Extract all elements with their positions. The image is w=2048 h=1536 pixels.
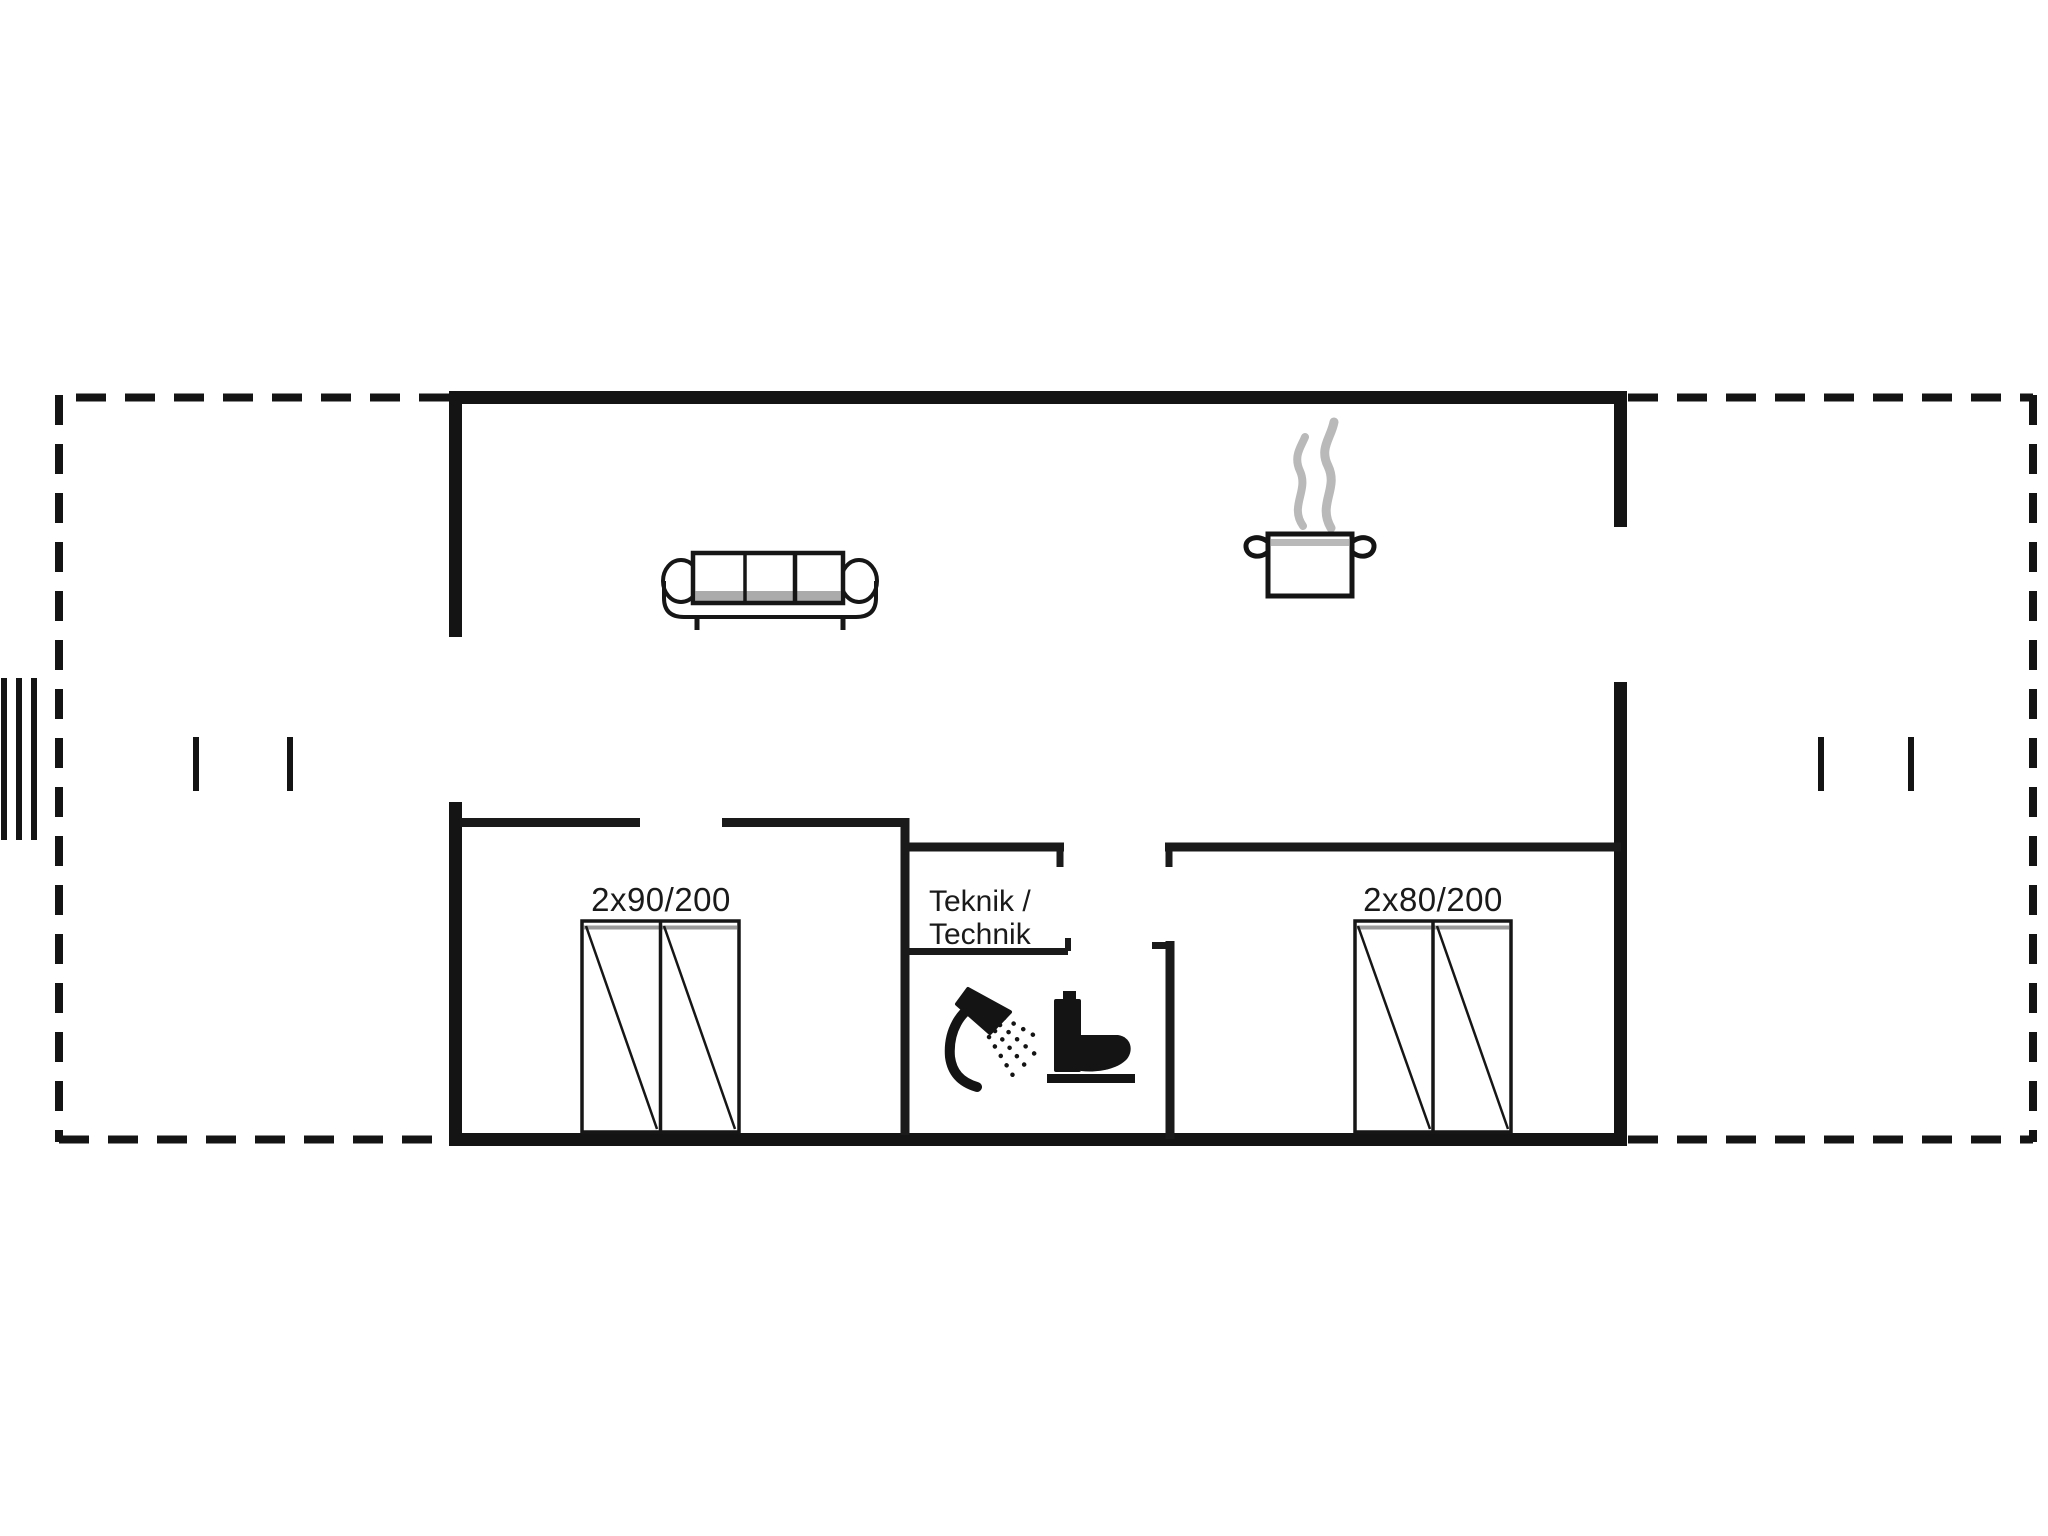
cooking-pot-icon [1246, 534, 1374, 596]
toilet-icon [1047, 991, 1135, 1083]
floor-plan: 2x90/200 2x80/200 Teknik / Technik [0, 0, 2048, 1536]
floor-plan-svg: 2x90/200 2x80/200 Teknik / Technik [0, 0, 2048, 1536]
utility-room-label-line2: Technik [929, 918, 1032, 951]
sofa-icon [663, 553, 877, 630]
bed-size-label-right: 2x80/200 [1363, 881, 1503, 918]
shower-icon [950, 989, 1042, 1087]
terrace-right-outline [1628, 395, 2033, 1142]
terrace-left-outline [59, 395, 449, 1142]
terrace-post-ticks [196, 737, 1911, 791]
steam-icon [1297, 422, 1334, 528]
bed-size-label-left: 2x90/200 [591, 881, 731, 918]
wardrobe-icon [582, 921, 739, 1132]
steps-marker-icon [4, 678, 34, 840]
wardrobe-icon [1355, 921, 1511, 1132]
utility-room-label-line1: Teknik / [929, 885, 1031, 918]
